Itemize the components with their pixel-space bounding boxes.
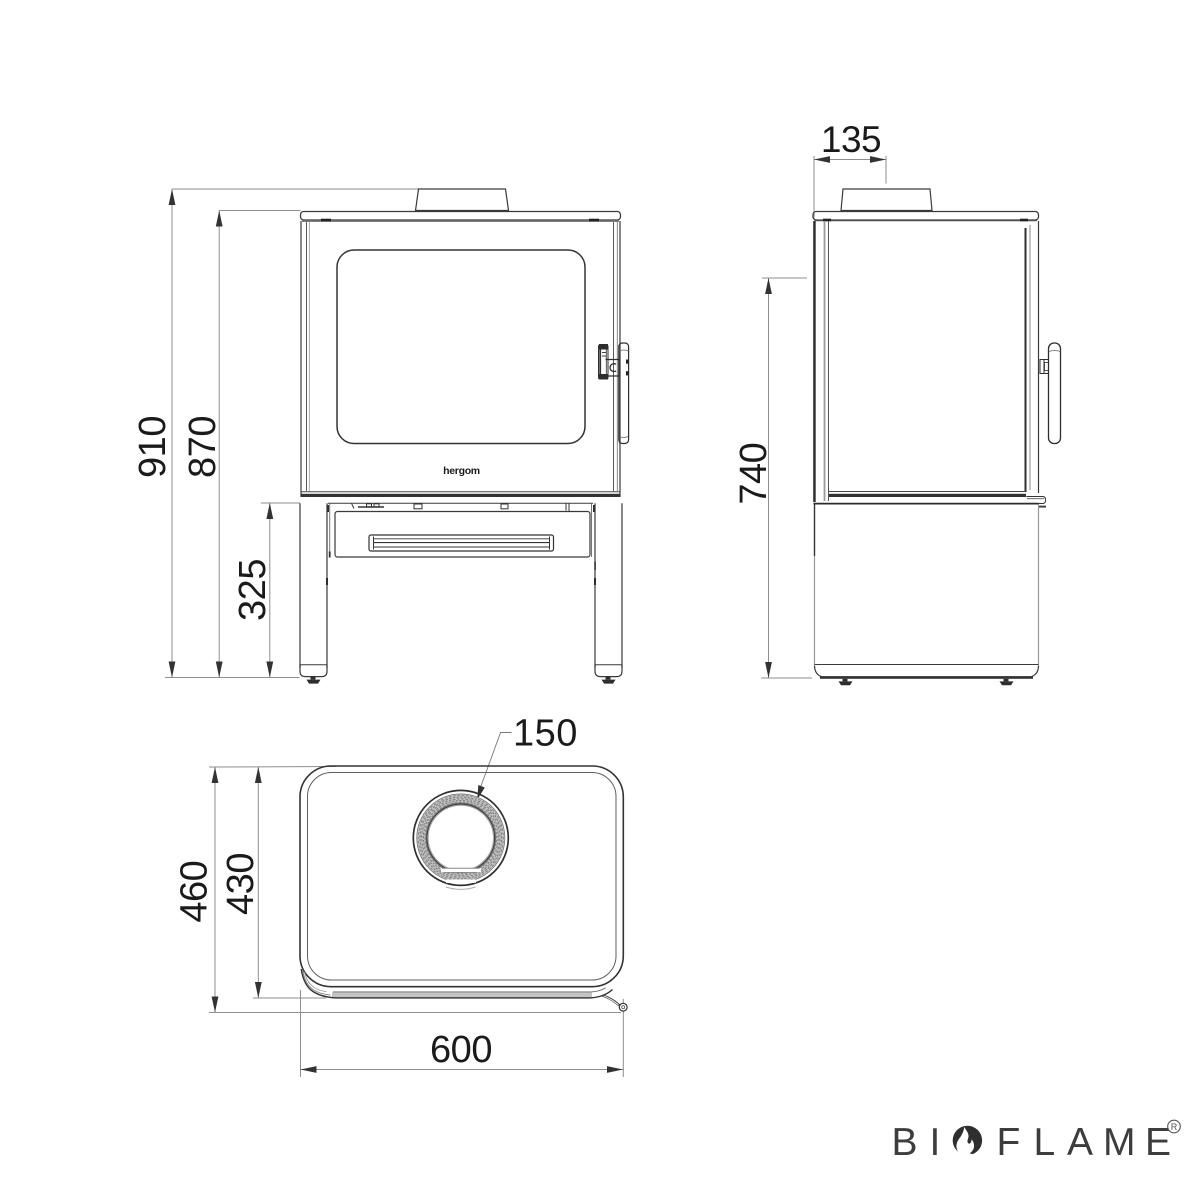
svg-text:L: L [1034, 1121, 1056, 1164]
svg-text:325: 325 [232, 559, 274, 621]
svg-text:A: A [1067, 1121, 1093, 1164]
svg-text:R: R [1171, 1122, 1178, 1132]
svg-text:I: I [930, 1121, 941, 1164]
svg-text:M: M [1103, 1121, 1136, 1164]
svg-text:460: 460 [174, 861, 216, 923]
svg-text:hergom: hergom [443, 465, 480, 477]
svg-text:E: E [1145, 1121, 1171, 1164]
svg-text:150: 150 [513, 713, 578, 755]
svg-text:F: F [997, 1121, 1021, 1164]
svg-text:740: 740 [733, 443, 775, 505]
svg-text:430: 430 [220, 853, 262, 915]
svg-text:600: 600 [430, 1029, 492, 1071]
svg-text:135: 135 [821, 119, 881, 160]
svg-text:870: 870 [182, 416, 224, 478]
svg-text:B: B [892, 1121, 918, 1164]
svg-text:910: 910 [132, 416, 174, 478]
